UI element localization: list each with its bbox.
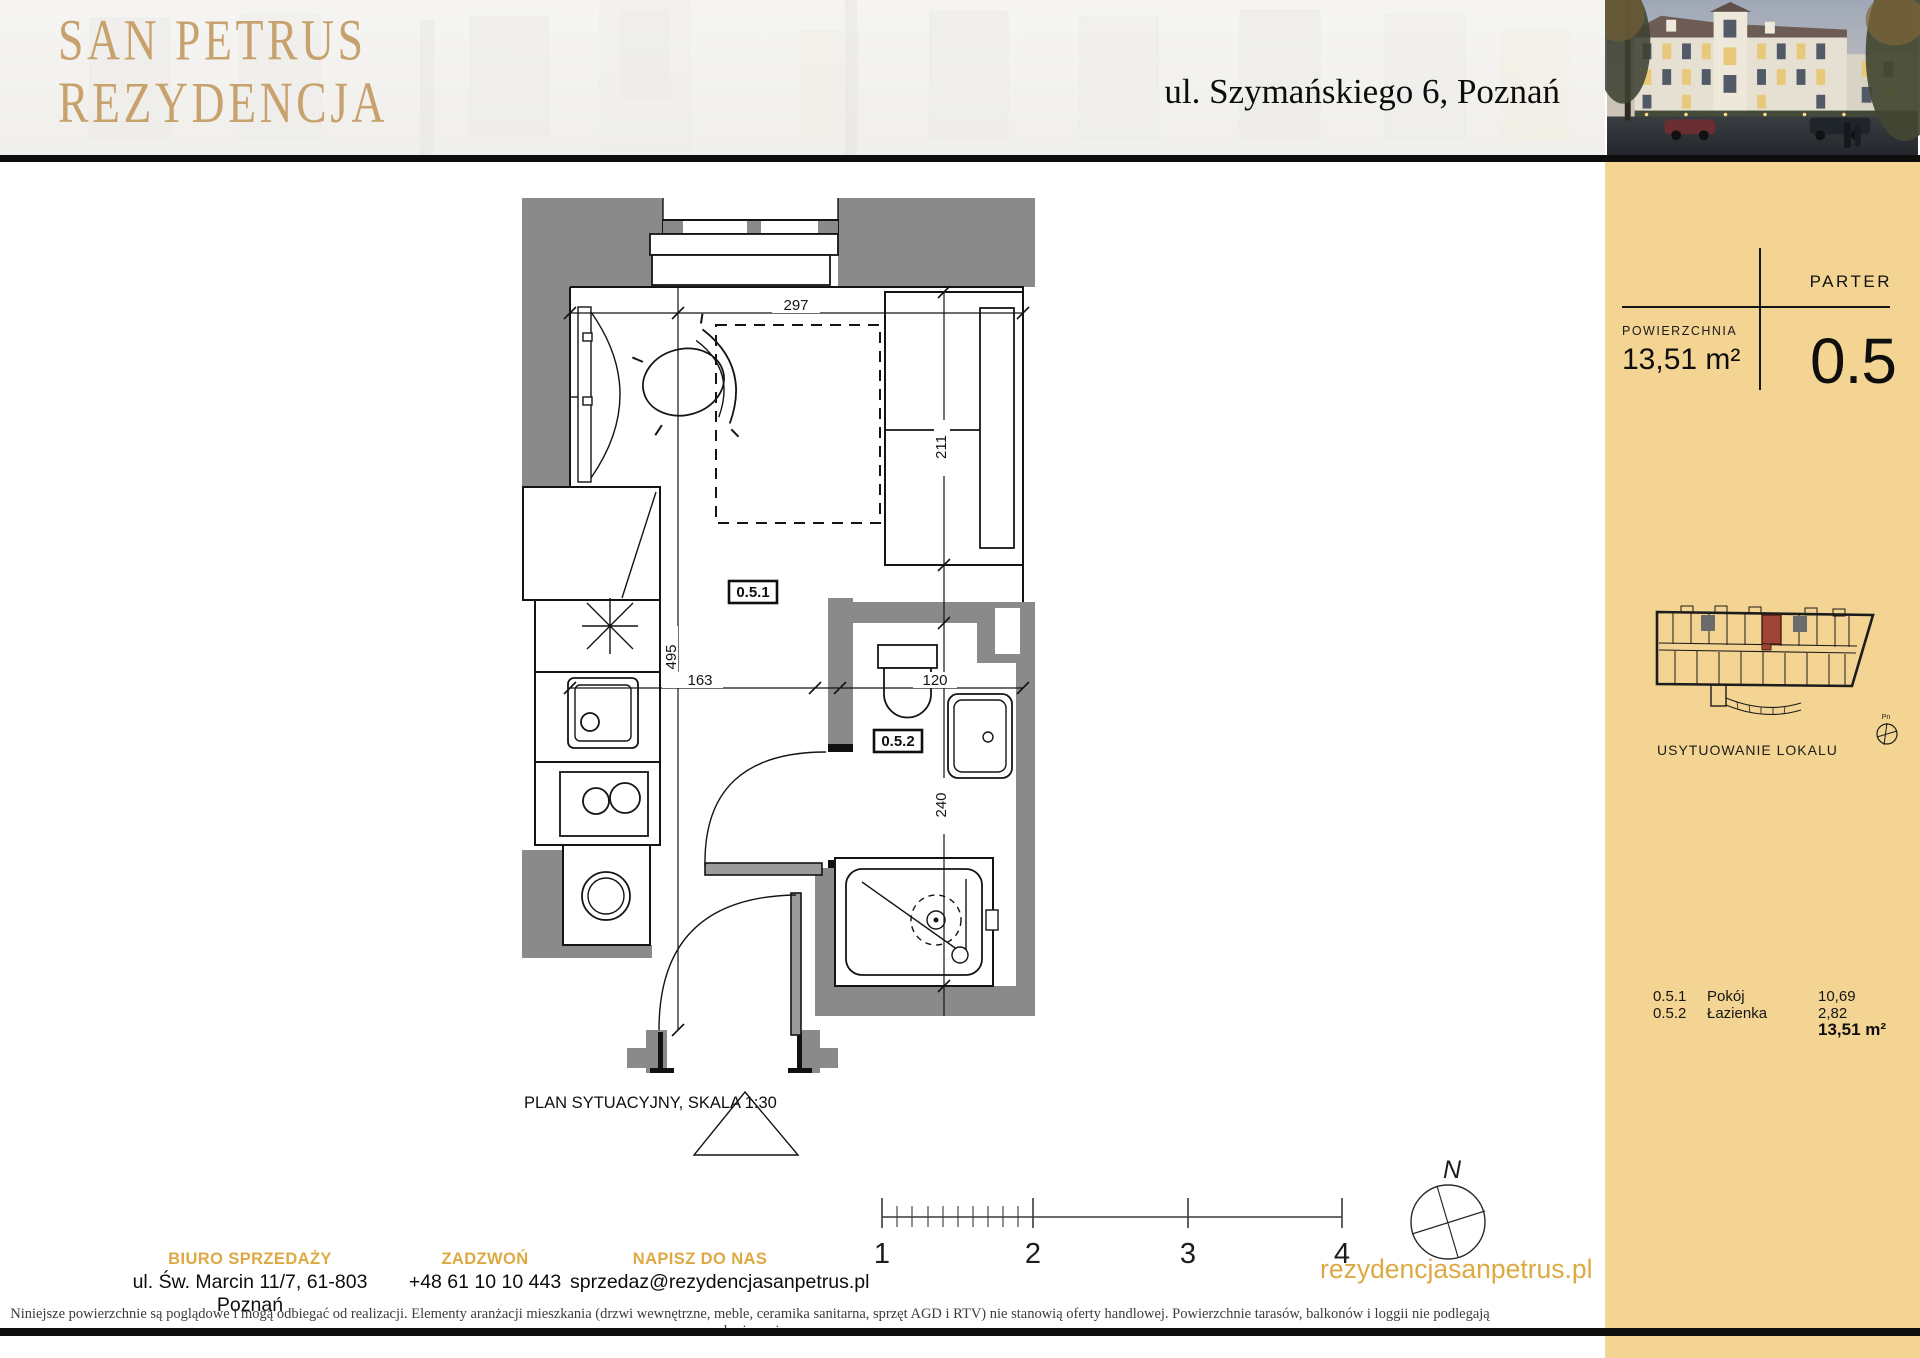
person <box>1844 122 1851 148</box>
north-compass-icon: N <box>1411 1156 1485 1259</box>
scale-bar <box>882 1198 1342 1228</box>
car-red <box>1664 119 1715 134</box>
location-miniplan: Pn <box>1645 588 1920 763</box>
logo: SAN PETRUS REZYDENCJA <box>58 10 388 135</box>
building-photo <box>1605 0 1920 155</box>
window <box>650 220 838 285</box>
room-name: Łazienka <box>1707 1005 1767 1022</box>
lamp-symbol <box>582 598 638 654</box>
entrance-door <box>659 893 801 1035</box>
stair-core <box>1701 615 1715 631</box>
plan-caption: PLAN SYTUACYJNY, SKALA 1:30 <box>524 1094 777 1112</box>
mini-compass-icon: Pn <box>1877 714 1897 745</box>
north-label: N <box>1443 1156 1462 1184</box>
header: SAN PETRUS REZYDENCJA ul. Szymańskiego 6… <box>0 0 1605 155</box>
header-address: ul. Szymańskiego 6, Poznań <box>900 72 1560 112</box>
rug-dashed <box>716 325 880 523</box>
website-link[interactable]: rezydencjasanpetrus.pl <box>1320 1254 1590 1285</box>
shower <box>835 858 998 986</box>
dim-495: 495 <box>663 644 680 669</box>
svg-text:0.5.2: 0.5.2 <box>881 733 914 750</box>
footer-col-email: NAPISZ DO NAS sprzedaz@rezydencjasanpetr… <box>570 1250 830 1294</box>
room-label-051: 0.5.1 <box>729 581 777 603</box>
dim-297: 297 <box>783 297 808 314</box>
floor-label: PARTER <box>1700 272 1892 292</box>
room-code: 0.5.2 <box>1653 1005 1686 1022</box>
person <box>1855 124 1861 147</box>
svg-text:0.5.1: 0.5.1 <box>736 584 769 601</box>
washbasin <box>948 694 1012 778</box>
floor-plan: 297 495 211 240 163 120 0.5.1 0.5.2 PLAN… <box>500 180 1180 1170</box>
logo-line2: REZYDENCJA <box>58 73 388 136</box>
total-area: 13,51 m² <box>1818 1020 1886 1040</box>
dim-240: 240 <box>933 792 950 817</box>
footer-title: NAPISZ DO NAS <box>570 1250 830 1269</box>
dim-120: 120 <box>922 672 947 689</box>
brochure-page: SAN PETRUS REZYDENCJA ul. Szymańskiego 6… <box>0 0 1920 1358</box>
stair-appendage <box>1711 685 1801 715</box>
bed <box>885 292 1023 565</box>
room-code: 0.5.1 <box>1653 988 1686 1005</box>
wardrobe <box>570 307 620 482</box>
armchair <box>626 310 750 458</box>
room-dividers <box>1673 613 1849 686</box>
scale-label-2: 2 <box>1025 1238 1041 1270</box>
logo-line1: SAN PETRUS <box>58 10 388 73</box>
room-label-052: 0.5.2 <box>874 730 922 752</box>
footer-email[interactable]: sprzedaz@rezydencjasanpetrus.pl <box>570 1271 830 1294</box>
room-area: 10,69 <box>1818 988 1856 1005</box>
sidebar-cross-horizontal <box>1622 306 1890 308</box>
room-name: Pokój <box>1707 988 1745 1005</box>
scale-label-1: 1 <box>874 1238 890 1270</box>
scale-label-3: 3 <box>1180 1238 1196 1270</box>
dim-163: 163 <box>687 672 712 689</box>
footer-divider <box>0 1328 1920 1336</box>
dim-211: 211 <box>933 435 950 459</box>
bathroom-door <box>705 752 826 875</box>
header-divider <box>0 155 1920 162</box>
stair-core <box>1793 616 1807 632</box>
location-label: USYTUOWANIE LOKALU <box>1657 742 1838 758</box>
unit-number: 0.5 <box>1700 324 1896 398</box>
mini-compass-label: Pn <box>1882 714 1891 721</box>
footer-title: BIURO SPRZEDAŻY <box>100 1250 400 1269</box>
